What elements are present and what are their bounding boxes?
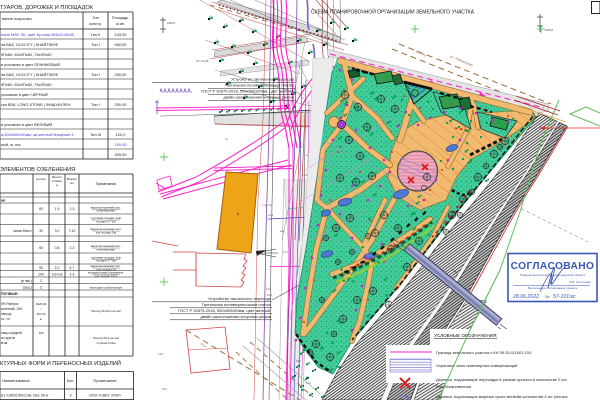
svg-text:м.кв.: м.кв.	[1, 341, 8, 345]
svg-text:Тип II: Тип II	[91, 32, 101, 37]
svg-text:№: №	[545, 294, 549, 299]
svg-text:в условиях в цвет ВЕЗУВИЙ: в условиях в цвет ВЕЗУВИЙ	[1, 122, 52, 127]
svg-text:Тип: Тип	[92, 16, 98, 20]
svg-text:группевая посадка, (шаг: группевая посадка, (шаг	[91, 255, 121, 259]
svg-text:а,500х500х50мм, цв.желтый Моще: а,500х500х50мм, цв.желтый Мощение 4.	[1, 132, 75, 137]
svg-text:250,00: 250,00	[115, 72, 128, 77]
svg-text:условиях в цвет ЧЕРНЫЙ: условиях в цвет ЧЕРНЫЙ	[1, 92, 48, 97]
svg-text:5% Райграс: 5% Райграс	[1, 302, 19, 306]
svg-text:КТУРНЫХ ФОРМ И ПЕРЕНОСНЫХ ИЗДЕ: КТУРНЫХ ФОРМ И ПЕРЕНОСНЫХ ИЗДЕЛИЙ	[0, 359, 121, 367]
svg-text:в условиях в цвет ОРАНЖЕВЫЙ: в условиях в цвет ОРАНЖЕВЫЙ	[1, 62, 60, 67]
svg-text:УСЛОВНЫЕ ОБОЗНАЧЕНИЯ:: УСЛОВНЫЕ ОБОЗНАЧЕНИЯ:	[434, 333, 498, 338]
svg-text:15,0: 15,0	[267, 293, 273, 297]
svg-text:Кол.: Кол.	[67, 379, 74, 383]
svg-text:почвозакрован.: почвозакрован.	[96, 248, 115, 251]
svg-text:7-10: 7-10	[69, 229, 76, 233]
svg-text:(закрытая корневая сист.,: (закрытая корневая сист.,	[90, 227, 122, 231]
svg-text:2-3: 2-3	[70, 272, 75, 276]
svg-text:30: 30	[39, 229, 43, 233]
svg-text:15,2: 15,2	[296, 360, 301, 363]
svg-text:Охранные зоны инженерных комму: Охранные зоны инженерных коммуникаций	[436, 363, 517, 368]
svg-text:2: 2	[40, 285, 42, 289]
svg-text:2-3: 2-3	[70, 207, 75, 211]
svg-text:0,6-0,8: 0,6-0,8	[52, 272, 63, 276]
svg-text:Е.В. Костромин: Е.В. Костромин	[569, 280, 591, 284]
svg-text:2: 2	[40, 279, 42, 283]
svg-text:150,00: 150,00	[115, 142, 128, 147]
svg-text:кг: кг	[40, 317, 42, 321]
svg-text:60: 60	[39, 207, 43, 211]
svg-text:Выполнение согласования проект: Выполнение согласования проекта	[528, 286, 577, 290]
svg-text:ницы средней: ницы средней	[1, 331, 22, 335]
svg-text:Расход 30-40гр на 1м²: Расход 30-40гр на 1м²	[91, 309, 121, 313]
svg-text:пересадка существующих: пересадка существующих	[90, 286, 123, 289]
svg-text:группевая посадка, (шаг: группевая посадка, (шаг	[91, 216, 121, 220]
svg-text:тка ББК, LONG STONE | ФИШХАУЗЕ: тка ББК, LONG STONE | ФИШХАУЗЕН	[1, 102, 71, 107]
svg-text:194: 194	[38, 272, 44, 276]
svg-text:ООО «СВЕТ 2000»: ООО «СВЕТ 2000»	[89, 394, 121, 398]
svg-text:м: м	[56, 183, 58, 187]
svg-text:(сущ.): (сущ.)	[23, 285, 32, 289]
svg-text:па ББК, OLDCITY | КНАЙТЛЮФ: па ББК, OLDCITY | КНАЙТЛЮФ	[1, 72, 58, 77]
svg-text:60: 60	[39, 246, 43, 250]
svg-text:Примечание: Примечание	[93, 378, 117, 383]
svg-text:1,5: 1,5	[55, 207, 60, 211]
svg-text:143,00: 143,00	[115, 32, 128, 37]
svg-text:чатая блес»: чатая блес»	[13, 229, 32, 233]
svg-text:колетний; 15%: колетний; 15%	[1, 307, 23, 311]
svg-text:0,8: 0,8	[55, 246, 60, 250]
svg-text:па ББК, OLDCITY | КНАЙТЛЮФ: па ББК, OLDCITY | КНАЙТЛЮФ	[1, 42, 58, 47]
svg-text:12,7: 12,7	[283, 250, 289, 254]
svg-text:Устройство тактильного переход: Устройство тактильного перехода	[208, 296, 272, 301]
svg-text:Устройство тактильного переход: Устройство тактильного перехода	[231, 77, 295, 82]
svg-text:9Пх60, 63х9Пх60, 73х9Пх60: 9Пх60, 63х9Пх60, 73х9Пх60	[1, 82, 52, 87]
svg-text:Примечания: Примечания	[96, 182, 117, 186]
svg-text:Тактильная полимерпесчаная пли: Тактильная полимерпесчаная плитка	[201, 302, 271, 307]
svg-text:м.кв.: м.кв.	[116, 22, 124, 26]
svg-text:вание покрытия: вание покрытия	[2, 16, 32, 21]
svg-text:Тип III: Тип III	[90, 132, 101, 137]
svg-text:28.06.2022: 28.06.2022	[512, 294, 539, 300]
svg-text:5-7: 5-7	[70, 266, 75, 270]
svg-text:Тип I: Тип I	[91, 42, 100, 47]
svg-text:Граница земельного участка с К: Граница земельного участка с КН 39:15:11…	[436, 350, 532, 355]
svg-text:двайн расположения конусных ри: двайн расположения конусных рифов	[223, 95, 294, 100]
svg-text:Тактильная полимерпесчаная пли: Тактильная полимерпесчаная плитка	[224, 83, 294, 88]
svg-text:Тип I: Тип I	[91, 72, 100, 77]
svg-text:Б1 0,85х0,55х2,0м. Вес 34 кг: Б1 0,85х0,55х2,0м. Вес 34 кг	[1, 394, 49, 398]
svg-text:14,9: 14,9	[306, 382, 311, 385]
svg-text:га. / кг: га. / кг	[1, 317, 11, 321]
svg-text:двайн расположения конусных ри: двайн расположения конусных рифов	[200, 314, 271, 319]
svg-text:лет: лет	[70, 181, 75, 185]
svg-text:14,9: 14,9	[268, 213, 274, 217]
svg-text:100: 100	[39, 331, 44, 335]
svg-text:СХЕМА ПЛАНИРОВОЧНОЙ ОРГАНИЗАЦИ: СХЕМА ПЛАНИРОВОЧНОЙ ОРГАНИЗАЦИИ ЗЕМЕЛЬНО…	[311, 8, 475, 16]
svg-text:Тип I: Тип I	[91, 102, 100, 107]
svg-text:ПОЧВЫЕ:: ПОЧВЫЕ:	[1, 292, 19, 296]
svg-text:2-3: 2-3	[70, 246, 75, 250]
svg-text:3,0: 3,0	[55, 229, 60, 233]
svg-text:тр.: тр.	[225, 138, 229, 141]
svg-text:2263,8: 2263,8	[167, 21, 175, 25]
svg-text:2263,8: 2263,8	[545, 28, 553, 32]
svg-text:9: 9	[70, 394, 72, 398]
svg-text:глубина 0,02м: глубина 0,02м	[96, 341, 115, 345]
svg-text:7 гр-.п%: 7 гр-.п%	[262, 203, 273, 207]
svg-text:Наименование: Наименование	[2, 378, 31, 383]
svg-text:197,00: 197,00	[37, 312, 46, 316]
svg-text:ая: ая	[1, 199, 5, 203]
svg-text:ГОСТ Р 52875-2018, 500х500х50м: ГОСТ Р 52875-2018, 500х500х50мм, цвет же…	[201, 89, 294, 94]
svg-text:Площадь,: Площадь,	[112, 16, 130, 20]
svg-text:9Пх60, 63х9Пх60, 73х9Пх60: 9Пх60, 63х9Пх60, 73х9Пх60	[1, 52, 52, 57]
svg-text:57-101/кс: 57-101/кс	[553, 294, 576, 300]
svg-text:200,00: 200,00	[115, 102, 128, 107]
svg-text:15,1: 15,1	[162, 387, 168, 391]
svg-text:почвозакрован.: почвозакрован.	[96, 210, 115, 213]
svg-text:950,00: 950,00	[115, 42, 128, 47]
svg-text:Деревья, подлежащие вырезке су: Деревья, подлежащие вырезке сухих ветвей…	[436, 394, 568, 399]
svg-text:ТУАРОВ, ДОРОЖЕК И ПЛОЩАДОК: ТУАРОВ, ДОРОЖЕК И ПЛОЩАДОК	[0, 5, 94, 11]
svg-text:120,0: 120,0	[116, 132, 127, 137]
svg-text:ПР-10 1кВ: ПР-10 1кВ	[196, 59, 209, 63]
svg-text:trade MAX 3D, цвет Бронза,3000: trade MAX 3D, цвет Бронза,3000х140х25	[1, 32, 74, 37]
svg-text:зем: зем	[280, 230, 285, 233]
svg-text:ГОСТ Р 52875-2018, 500х500х50м: ГОСТ Р 52875-2018, 500х500х50мм, цвет же…	[178, 308, 271, 313]
svg-text:(в пак.): (в пак.)	[21, 279, 32, 283]
svg-text:Ель обыкновенная: Ель обыкновенная	[436, 384, 471, 389]
svg-text:свница: свница	[1, 312, 12, 316]
svg-text:925,00: 925,00	[115, 152, 128, 157]
svg-text:4920,00: 4920,00	[36, 302, 47, 306]
svg-text:Кол-во: Кол-во	[36, 177, 46, 181]
svg-text:50: 50	[39, 266, 43, 270]
svg-text:14,8: 14,8	[266, 287, 272, 291]
svg-text:констр.: констр.	[89, 22, 102, 26]
svg-text:ный, м. пог.: ный, м. пог.	[1, 142, 21, 147]
svg-text:14,6: 14,6	[158, 352, 164, 356]
svg-text:ых кругов: ых кругов	[1, 336, 15, 340]
svg-text:Расход 50гр на 1м²: Расход 50гр на 1м²	[93, 336, 119, 340]
svg-text:2,0: 2,0	[55, 266, 60, 270]
svg-text:Деревья, подлежащие пересадке: Деревья, подлежащие пересадке в рамках п…	[436, 377, 568, 382]
svg-text:ЭЛЕМЕНТОВ ОЗЕЛЕНЕНИЯ: ЭЛЕМЕНТОВ ОЗЕЛЕНЕНИЯ	[0, 167, 75, 173]
